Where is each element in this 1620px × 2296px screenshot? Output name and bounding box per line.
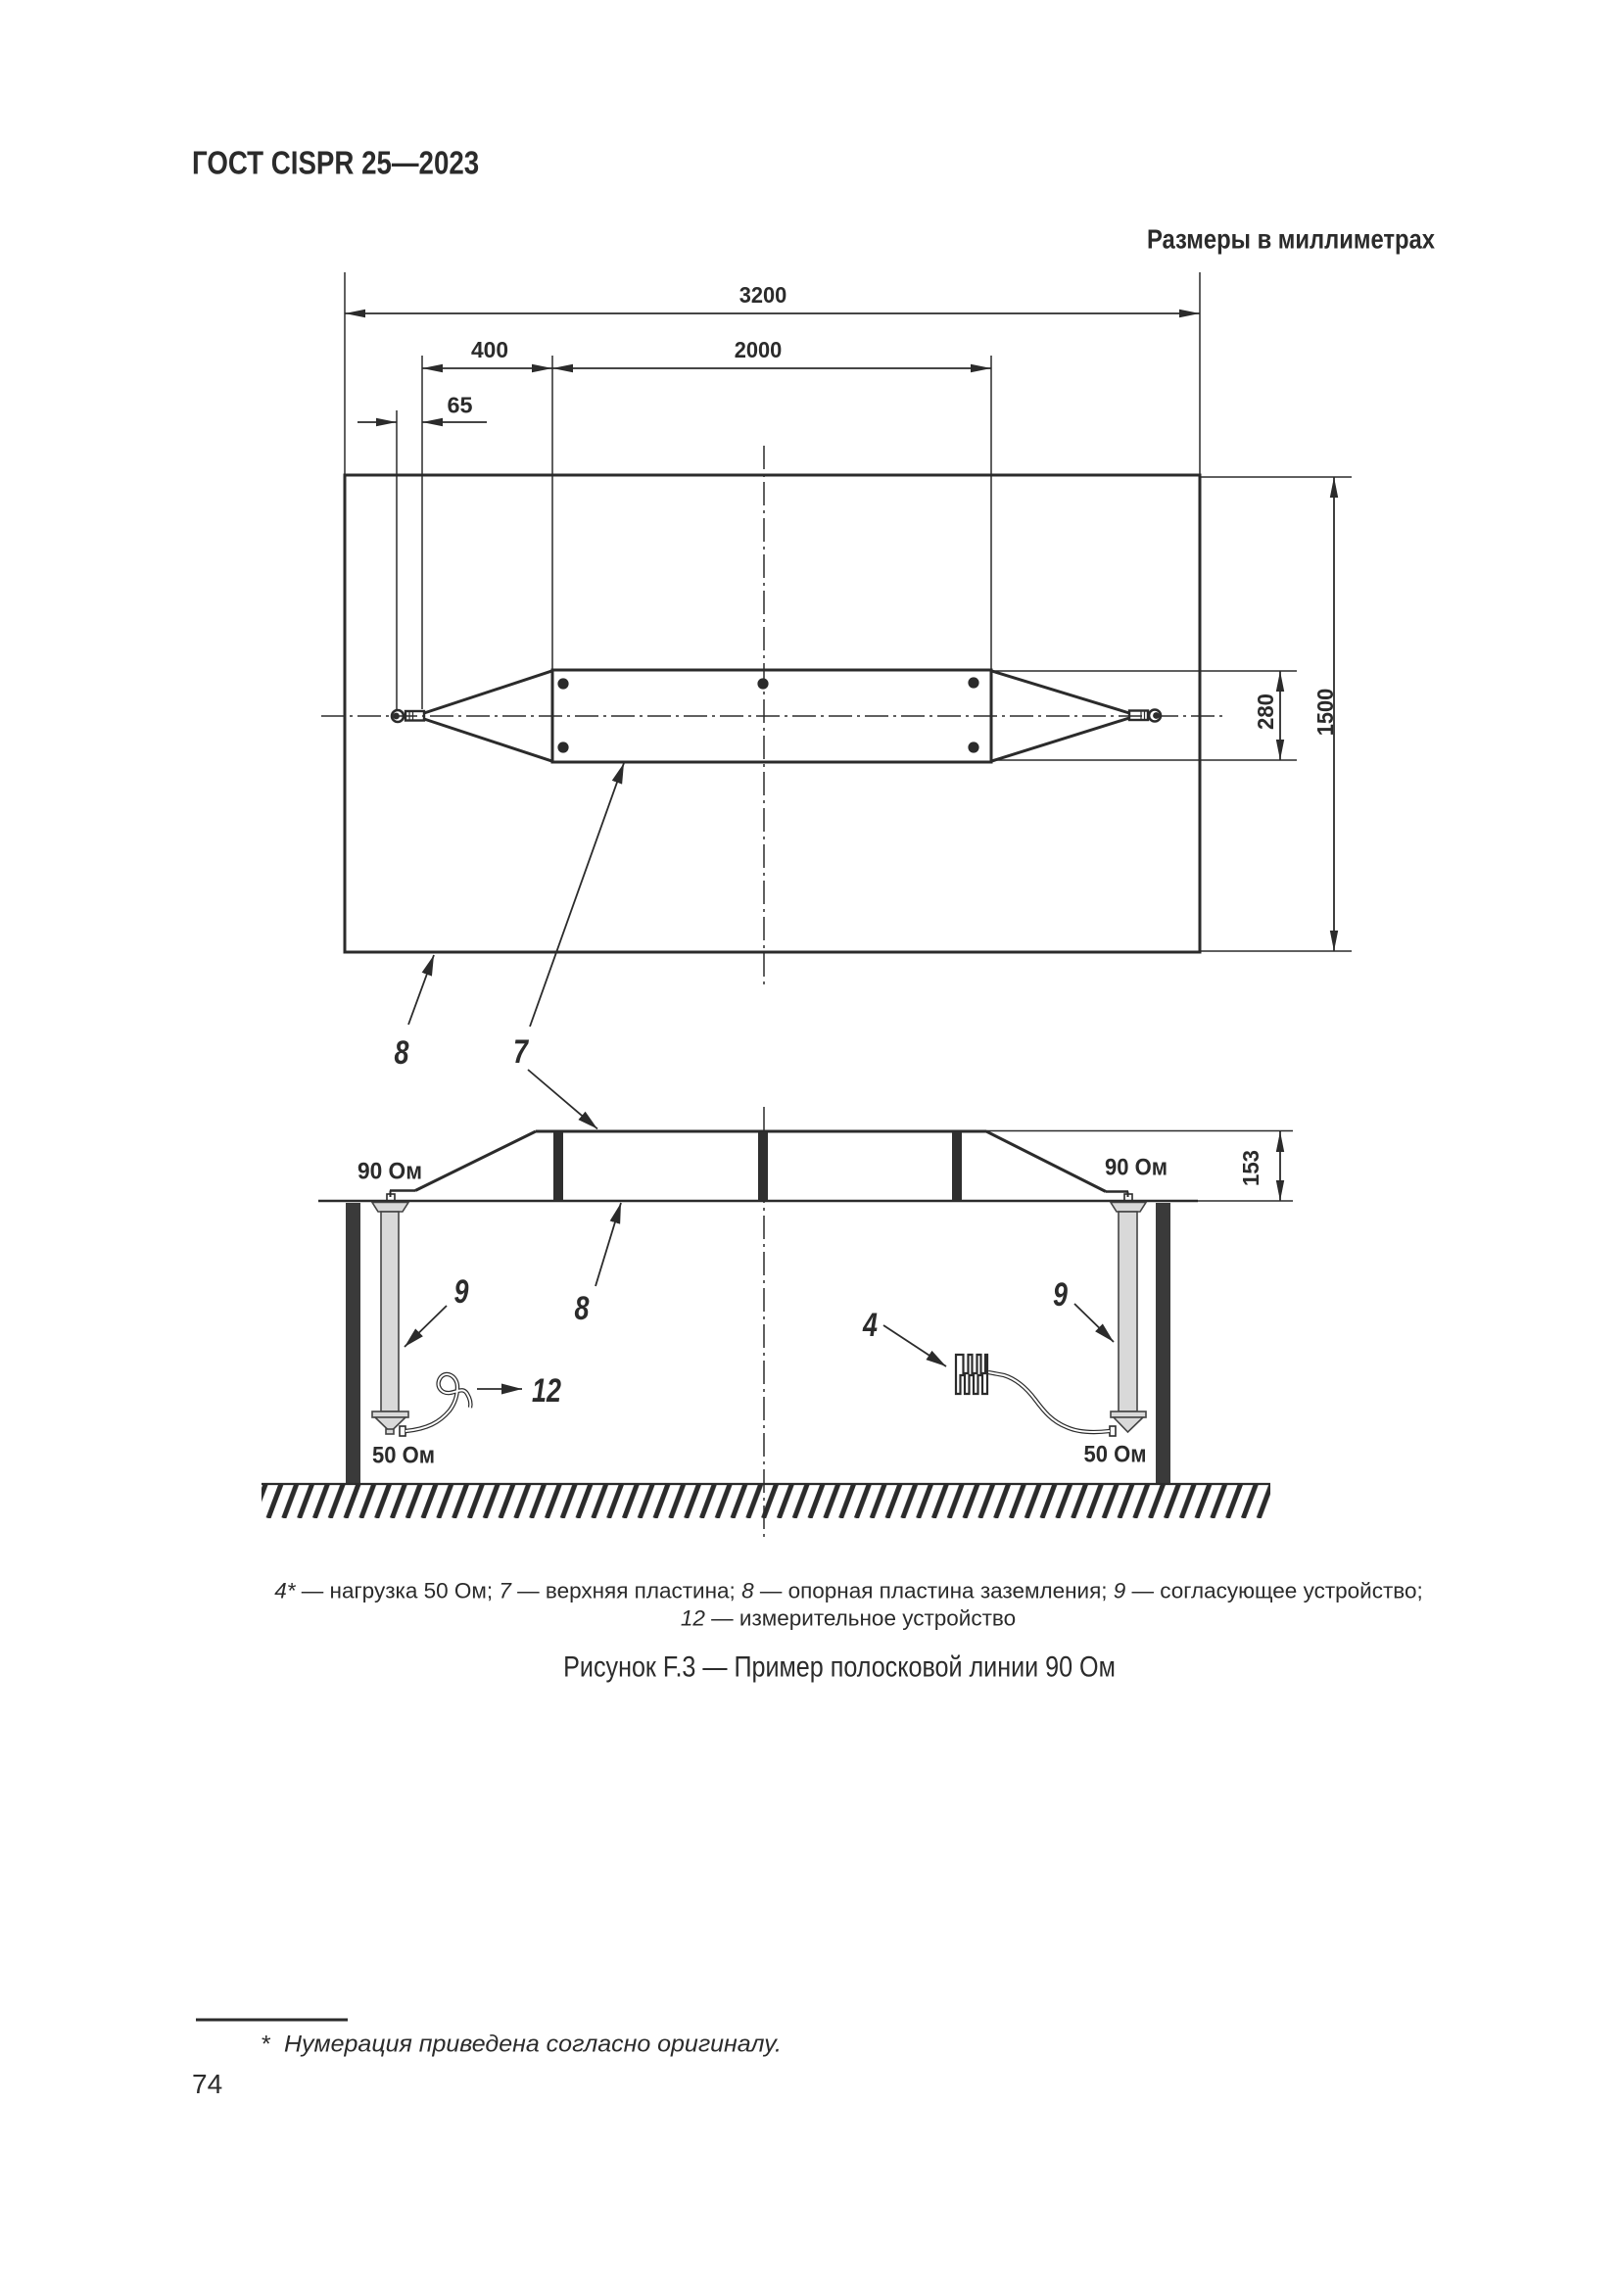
svg-text:65: 65 <box>448 393 473 418</box>
svg-text:ГОСТ CISPR 25—2023: ГОСТ CISPR 25—2023 <box>192 144 479 181</box>
svg-text:Рисунок F.3 — Пример полосково: Рисунок F.3 — Пример полосковой линии 90… <box>563 1650 1116 1683</box>
svg-text:4: 4 <box>862 1306 878 1344</box>
svg-text:9: 9 <box>1053 1275 1069 1314</box>
svg-text:1500: 1500 <box>1312 689 1338 737</box>
svg-text:74: 74 <box>192 2069 222 2099</box>
svg-text:*: * <box>262 2032 271 2058</box>
svg-text:12 — измерительное устройство: 12 — измерительное устройство <box>681 1606 1016 1631</box>
svg-text:12: 12 <box>532 1371 561 1410</box>
svg-text:Размеры в миллиметрах: Размеры в миллиметрах <box>1147 223 1436 255</box>
svg-text:8: 8 <box>575 1289 591 1327</box>
svg-text:280: 280 <box>1253 694 1278 730</box>
svg-text:50 Ом: 50 Ом <box>1084 1442 1147 1468</box>
svg-text:153: 153 <box>1238 1150 1263 1186</box>
svg-text:3200: 3200 <box>739 282 787 308</box>
svg-text:90 Ом: 90 Ом <box>1105 1155 1167 1181</box>
svg-text:9: 9 <box>454 1272 470 1311</box>
svg-text:4* — нагрузка 50 Ом; 7 — верхн: 4* — нагрузка 50 Ом; 7 — верхняя пластин… <box>274 1579 1423 1603</box>
svg-text:2000: 2000 <box>735 337 783 362</box>
svg-text:Нумерация приведена согласно о: Нумерация приведена согласно оригиналу. <box>284 2032 782 2058</box>
svg-text:7: 7 <box>513 1032 530 1071</box>
svg-text:8: 8 <box>395 1033 410 1072</box>
svg-text:400: 400 <box>471 337 508 362</box>
svg-text:90 Ом: 90 Ом <box>357 1159 422 1185</box>
svg-text:50 Ом: 50 Ом <box>372 1443 435 1469</box>
